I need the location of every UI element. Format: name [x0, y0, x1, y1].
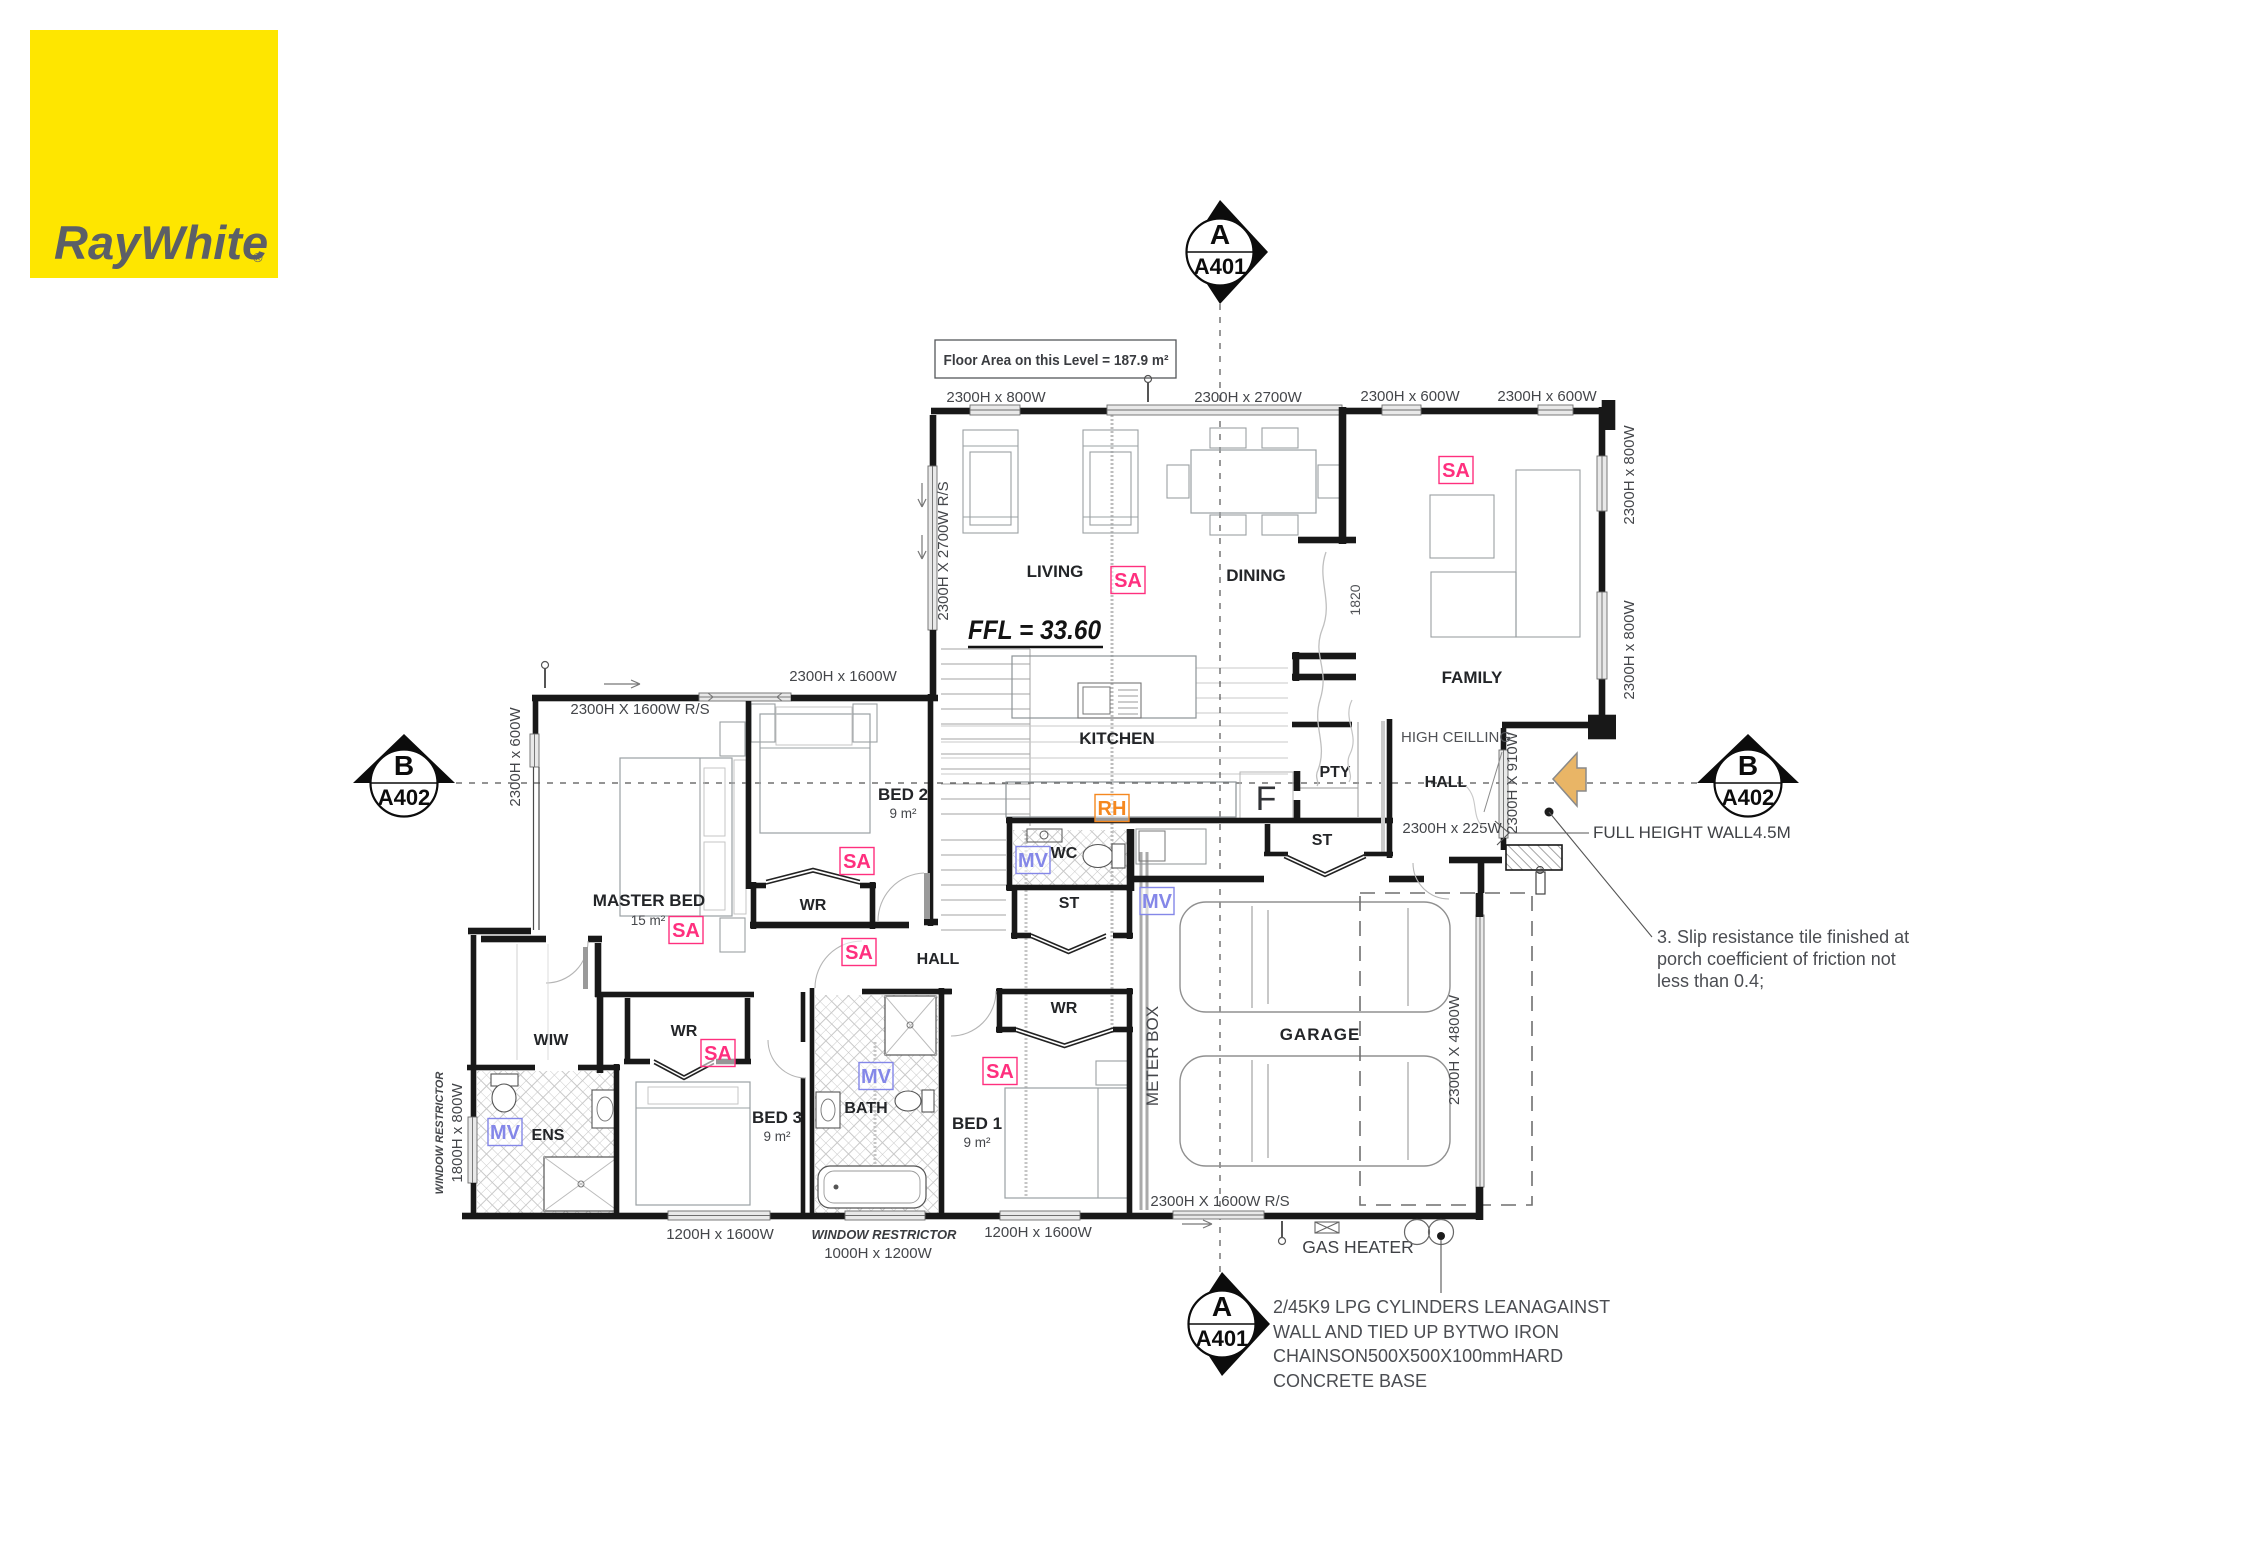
svg-text:porch coefficient of friction: porch coefficient of friction not	[1657, 949, 1896, 969]
svg-text:Floor Area on this Level = 187: Floor Area on this Level = 187.9 m²	[944, 353, 1169, 369]
svg-text:2300H X 1600W R/S: 2300H X 1600W R/S	[1150, 1193, 1289, 1210]
svg-text:DINING: DINING	[1226, 566, 1286, 585]
svg-text:WC: WC	[1051, 845, 1078, 862]
svg-text:RH: RH	[1098, 798, 1127, 820]
svg-text:RayWhite: RayWhite	[54, 216, 268, 269]
svg-text:BED 3: BED 3	[752, 1108, 802, 1127]
svg-text:ENS: ENS	[532, 1127, 565, 1144]
svg-text:A401: A401	[1196, 1326, 1249, 1351]
svg-text:B: B	[1738, 750, 1758, 781]
svg-text:WINDOW RESTRICTOR: WINDOW RESTRICTOR	[434, 1072, 446, 1195]
svg-text:2300H x 225W: 2300H x 225W	[1402, 820, 1502, 837]
svg-text:MASTER BED: MASTER BED	[593, 891, 705, 910]
svg-text:HALL: HALL	[1425, 774, 1468, 791]
svg-text:WR: WR	[671, 1023, 698, 1040]
svg-text:MV: MV	[1142, 891, 1173, 913]
svg-text:F: F	[1256, 780, 1277, 818]
svg-text:1800H x 800W: 1800H x 800W	[449, 1083, 466, 1183]
svg-text:2300H x 1600W: 2300H x 1600W	[789, 668, 897, 685]
svg-text:SA: SA	[672, 920, 700, 942]
svg-text:PTY: PTY	[1319, 764, 1350, 781]
svg-text:2300H X 910W: 2300H X 910W	[1504, 731, 1521, 834]
svg-text:2300H x 600W: 2300H x 600W	[507, 707, 524, 807]
svg-text:ST: ST	[1059, 895, 1080, 912]
svg-text:SA: SA	[843, 851, 871, 873]
svg-text:BED 2: BED 2	[878, 785, 928, 804]
svg-text:WR: WR	[800, 897, 827, 914]
svg-text:9 m²: 9 m²	[890, 806, 918, 821]
svg-text:less than 0.4;: less than 0.4;	[1657, 971, 1764, 991]
svg-text:HIGH CEILLING: HIGH CEILLING	[1401, 729, 1511, 746]
svg-text:A401: A401	[1194, 254, 1247, 279]
svg-text:SA: SA	[986, 1061, 1014, 1083]
svg-text:KITCHEN: KITCHEN	[1079, 729, 1155, 748]
svg-text:®: ®	[253, 250, 263, 265]
svg-text:FULL HEIGHT WALL4.5M: FULL HEIGHT WALL4.5M	[1593, 823, 1791, 842]
svg-text:2300H x 800W: 2300H x 800W	[1621, 425, 1638, 525]
svg-text:ST: ST	[1312, 832, 1333, 849]
svg-text:2300H x 600W: 2300H x 600W	[1360, 388, 1460, 405]
svg-text:2300H X 2700W R/S: 2300H X 2700W R/S	[935, 481, 952, 620]
svg-text:9 m²: 9 m²	[964, 1135, 992, 1150]
svg-text:BATH: BATH	[844, 1100, 887, 1117]
svg-text:1200H x 1600W: 1200H x 1600W	[984, 1224, 1092, 1241]
svg-text:2300H x 2700W: 2300H x 2700W	[1194, 389, 1302, 406]
svg-text:9 m²: 9 m²	[764, 1129, 792, 1144]
svg-text:A402: A402	[1722, 785, 1775, 810]
svg-text:MV: MV	[861, 1066, 892, 1088]
svg-text:CHAINSON500X500X100mmHARD: CHAINSON500X500X100mmHARD	[1273, 1346, 1563, 1366]
svg-text:HALL: HALL	[917, 951, 960, 968]
svg-text:GAS HEATER: GAS HEATER	[1302, 1237, 1414, 1257]
svg-text:2300H x 800W: 2300H x 800W	[946, 389, 1046, 406]
svg-text:2300H X 4800W: 2300H X 4800W	[1446, 994, 1463, 1105]
svg-text:SA: SA	[1442, 460, 1470, 482]
svg-text:METER BOX: METER BOX	[1143, 1006, 1162, 1106]
svg-text:15 m²: 15 m²	[631, 913, 666, 928]
svg-text:2300H x 800W: 2300H x 800W	[1621, 600, 1638, 700]
svg-text:2/45K9 LPG CYLINDERS LEANAGAIN: 2/45K9 LPG CYLINDERS LEANAGAINST	[1273, 1297, 1610, 1317]
svg-text:2300H X 1600W R/S: 2300H X 1600W R/S	[570, 701, 709, 718]
svg-text:GARAGE: GARAGE	[1280, 1025, 1361, 1044]
svg-text:B: B	[394, 750, 414, 781]
svg-text:FAMILY: FAMILY	[1442, 668, 1503, 687]
svg-text:SA: SA	[1114, 570, 1142, 592]
svg-text:A402: A402	[378, 785, 431, 810]
svg-text:2300H x 600W: 2300H x 600W	[1497, 388, 1597, 405]
svg-text:A: A	[1212, 1291, 1232, 1322]
svg-text:WR: WR	[1051, 1000, 1078, 1017]
svg-text:CONCRETE BASE: CONCRETE BASE	[1273, 1371, 1427, 1391]
svg-text:WINDOW RESTRICTOR: WINDOW RESTRICTOR	[812, 1227, 958, 1242]
svg-text:1820: 1820	[1347, 584, 1363, 615]
svg-text:3. Slip resistance tile finish: 3. Slip resistance tile finished at	[1657, 927, 1909, 947]
svg-text:1200H x 1600W: 1200H x 1600W	[666, 1226, 774, 1243]
svg-text:SA: SA	[845, 942, 873, 964]
svg-text:WALL AND TIED UP BYTWO IRON: WALL AND TIED UP BYTWO IRON	[1273, 1322, 1559, 1342]
svg-text:A: A	[1210, 219, 1230, 250]
svg-text:LIVING: LIVING	[1027, 562, 1084, 581]
svg-text:BED 1: BED 1	[952, 1114, 1002, 1133]
svg-text:1000H x 1200W: 1000H x 1200W	[824, 1245, 932, 1262]
svg-text:FFL = 33.60: FFL = 33.60	[968, 615, 1101, 645]
svg-text:MV: MV	[490, 1122, 521, 1144]
svg-text:WIW: WIW	[534, 1032, 570, 1049]
svg-text:SA: SA	[704, 1043, 732, 1065]
svg-text:MV: MV	[1018, 850, 1049, 872]
